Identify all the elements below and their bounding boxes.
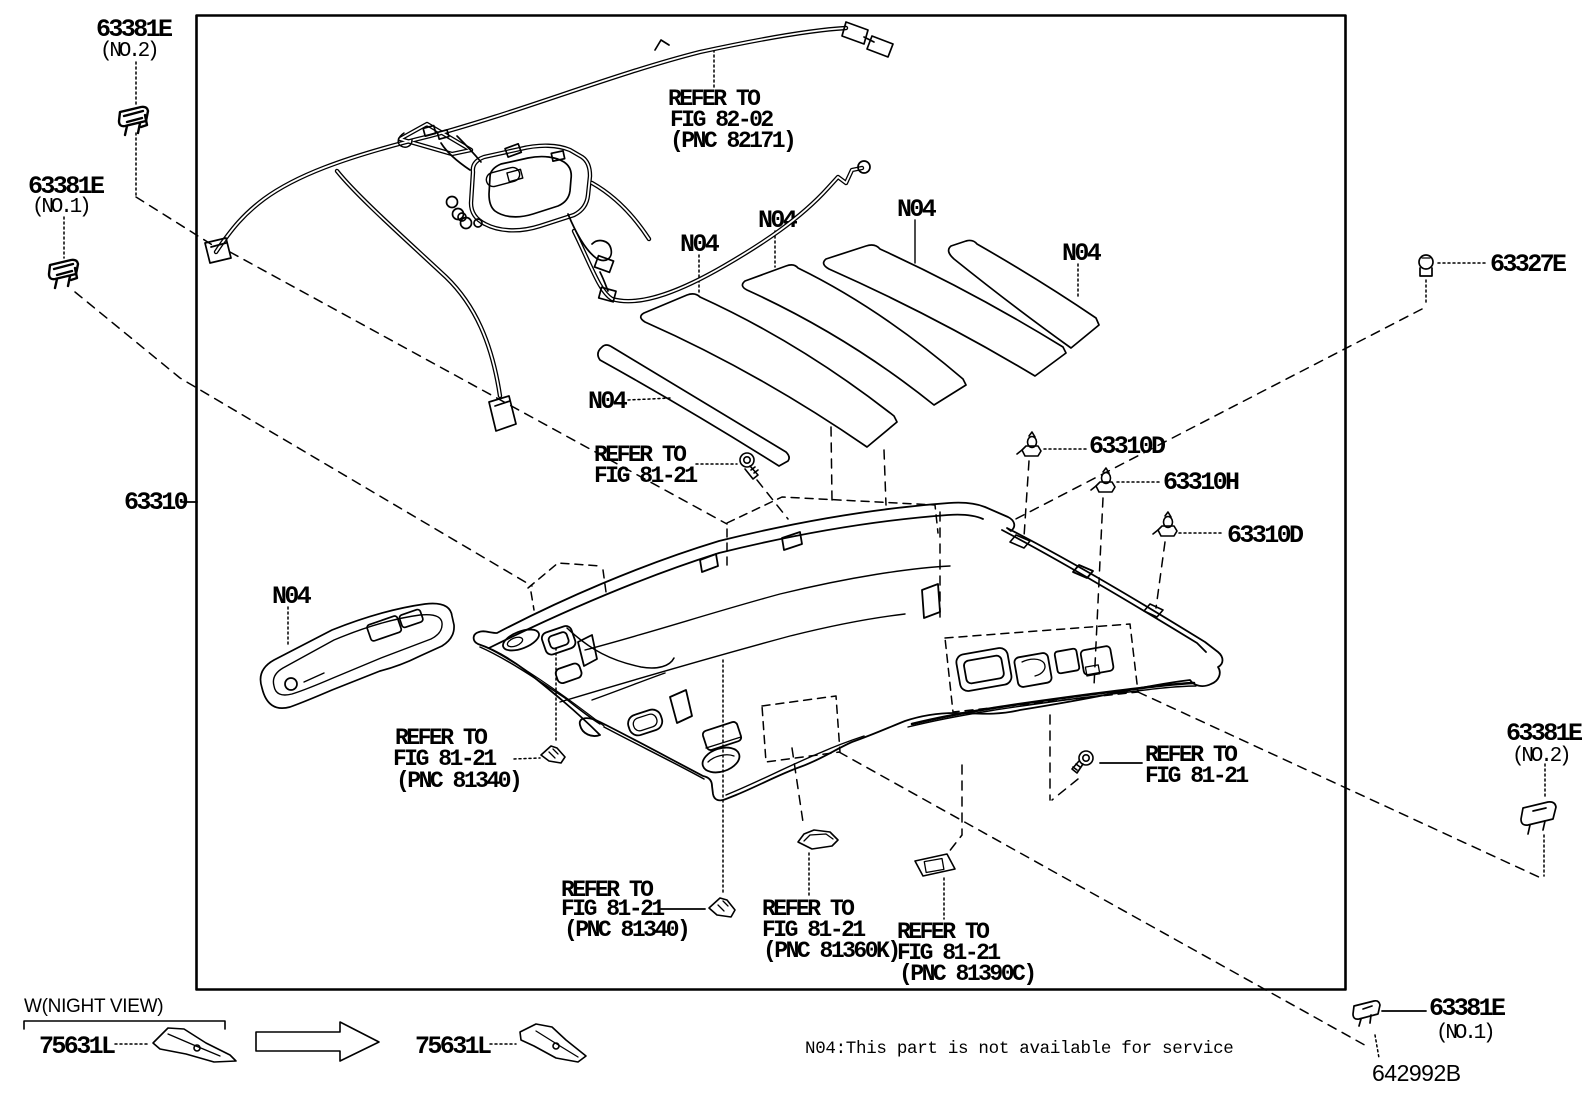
svg-text:(PNC 81390C): (PNC 81390C) — [899, 961, 1035, 987]
svg-text:(NO.2): (NO.2) — [100, 40, 157, 63]
svg-text:(PNC 81360K): (PNC 81360K) — [763, 938, 899, 964]
svg-text:(PNC 81340): (PNC 81340) — [564, 917, 688, 943]
svg-text:642992B: 642992B — [1372, 1060, 1461, 1086]
svg-text:63310H: 63310H — [1163, 468, 1239, 497]
svg-text:(PNC 81340): (PNC 81340) — [396, 768, 520, 794]
svg-text:(NO.2): (NO.2) — [1512, 745, 1569, 768]
svg-text:(NO.1): (NO.1) — [1436, 1022, 1493, 1045]
svg-text:N04:This part is not available: N04:This part is not available for servi… — [805, 1039, 1233, 1059]
svg-text:FIG 81-21: FIG 81-21 — [594, 463, 697, 489]
svg-text:63381E: 63381E — [1506, 719, 1582, 748]
svg-text:75631L: 75631L — [39, 1032, 115, 1061]
svg-text:(NO.1): (NO.1) — [32, 196, 89, 219]
svg-text:N04: N04 — [680, 230, 720, 259]
svg-text:63310D: 63310D — [1089, 432, 1166, 461]
svg-text:63381E: 63381E — [1429, 994, 1505, 1023]
svg-text:W(NIGHT VIEW): W(NIGHT VIEW) — [24, 996, 163, 1017]
svg-text:63310: 63310 — [124, 488, 188, 517]
svg-text:N04: N04 — [1062, 239, 1102, 268]
svg-text:(PNC 82171): (PNC 82171) — [670, 128, 794, 154]
svg-text:63310D: 63310D — [1227, 521, 1304, 550]
svg-text:FIG 81-21: FIG 81-21 — [1145, 763, 1248, 789]
svg-text:N04: N04 — [272, 582, 312, 611]
svg-text:75631L: 75631L — [415, 1032, 491, 1061]
svg-text:N04: N04 — [588, 387, 628, 416]
svg-text:N04: N04 — [897, 195, 937, 224]
svg-text:63327E: 63327E — [1490, 250, 1566, 279]
